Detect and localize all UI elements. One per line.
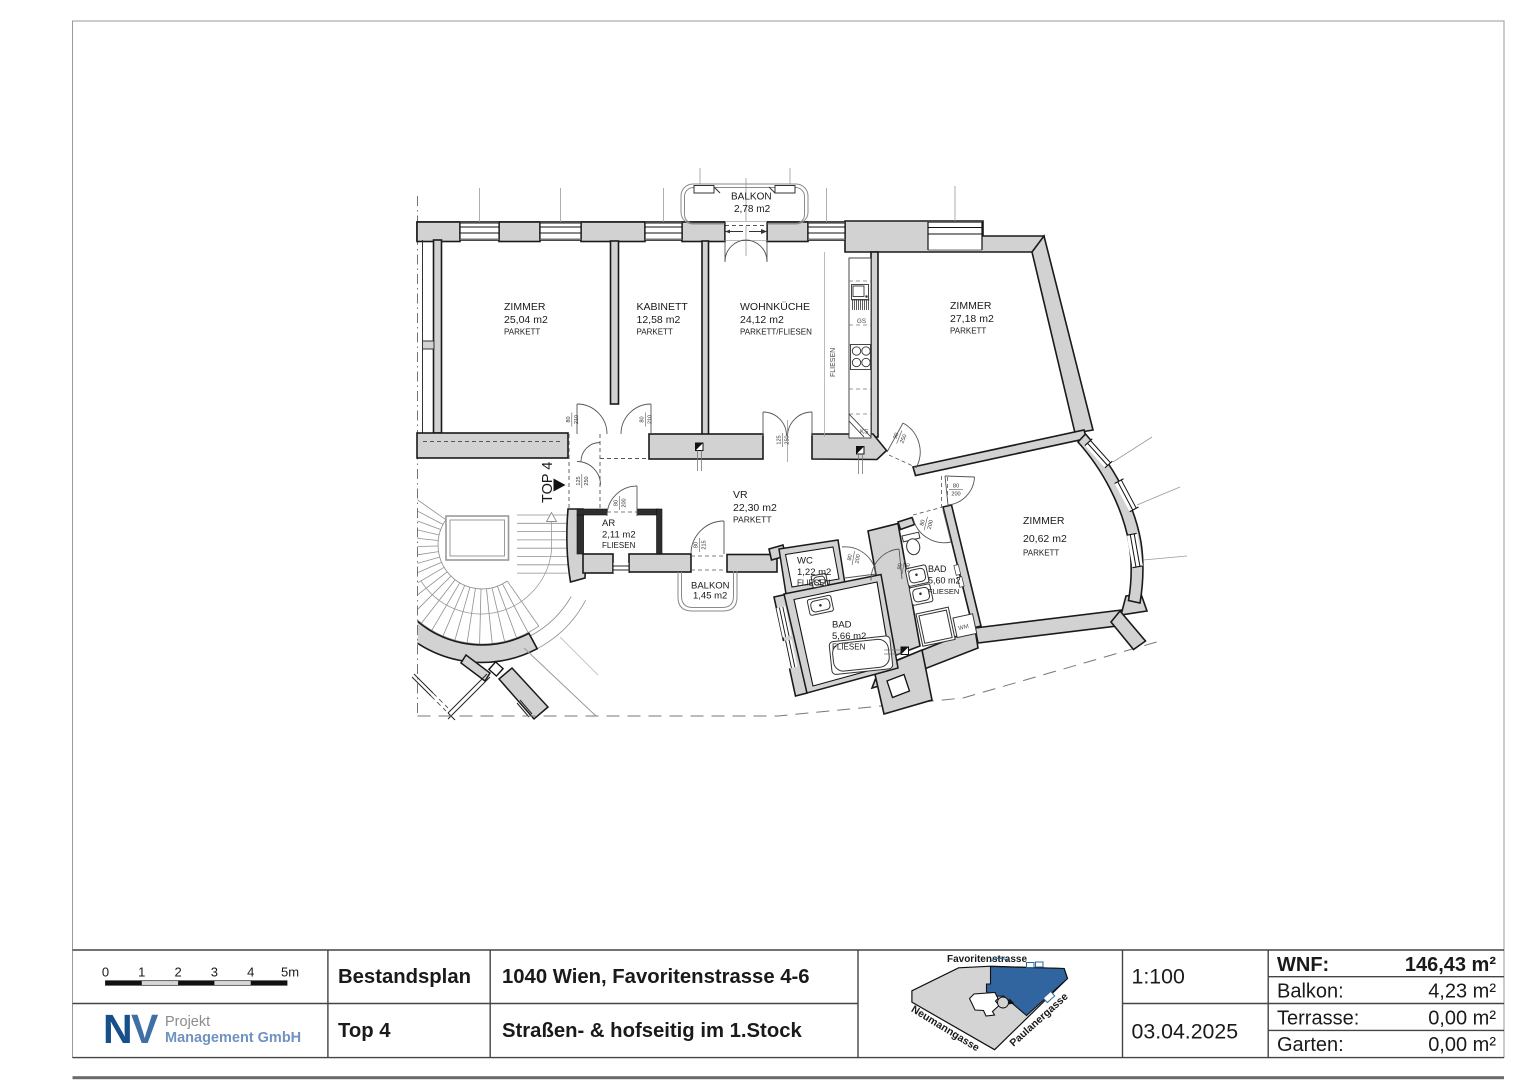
svg-text:ZIMMER: ZIMMER [504, 301, 546, 313]
svg-text:BAD: BAD [928, 564, 947, 574]
svg-text:80: 80 [639, 416, 645, 422]
svg-text:80: 80 [566, 416, 572, 422]
svg-text:0,00 m²: 0,00 m² [1428, 1034, 1496, 1056]
svg-text:200: 200 [951, 491, 960, 497]
svg-text:VR: VR [733, 489, 748, 501]
svg-text:125: 125 [776, 435, 782, 444]
svg-text:22,30 m2: 22,30 m2 [733, 502, 777, 514]
svg-text:BALKON: BALKON [731, 192, 772, 203]
svg-text:2,11 m2: 2,11 m2 [602, 530, 636, 541]
svg-text:BAD: BAD [832, 620, 852, 631]
svg-text:1: 1 [138, 965, 145, 980]
svg-text:25,04 m2: 25,04 m2 [504, 314, 548, 326]
svg-text:4,23 m²: 4,23 m² [1428, 981, 1496, 1003]
svg-text:03.04.2025: 03.04.2025 [1132, 1020, 1239, 1044]
svg-text:Favoritenstrasse: Favoritenstrasse [947, 954, 1027, 965]
svg-text:200: 200 [621, 498, 627, 507]
svg-text:WC: WC [797, 556, 813, 567]
svg-text:FLIESEN: FLIESEN [832, 643, 866, 652]
svg-text:Projekt: Projekt [165, 1014, 210, 1030]
svg-text:PARKETT: PARKETT [1023, 549, 1059, 558]
svg-text:AR: AR [602, 518, 615, 529]
svg-text:215: 215 [701, 540, 707, 549]
svg-text:200: 200 [855, 554, 863, 564]
svg-text:125: 125 [576, 476, 582, 485]
svg-text:WNF:: WNF: [1277, 954, 1329, 976]
svg-text:20,62 m2: 20,62 m2 [1023, 533, 1067, 545]
svg-text:1,22 m2: 1,22 m2 [797, 567, 831, 578]
svg-text:250: 250 [784, 435, 790, 444]
svg-text:1040 Wien, Favoritenstrasse 4-: 1040 Wien, Favoritenstrasse 4-6 [502, 966, 810, 988]
svg-text:FLIESEN: FLIESEN [830, 348, 837, 377]
svg-text:KS: KS [860, 429, 868, 436]
svg-text:FLIESEN: FLIESEN [797, 579, 831, 588]
svg-text:Straßen- & hofseitig im 1.Stoc: Straßen- & hofseitig im 1.Stock [502, 1020, 802, 1042]
svg-text:0,00 m²: 0,00 m² [1428, 1008, 1496, 1030]
svg-text:PARKETT/FLIESEN: PARKETT/FLIESEN [740, 328, 812, 337]
svg-text:210: 210 [574, 415, 580, 424]
svg-text:Management GmbH: Management GmbH [165, 1030, 301, 1046]
svg-text:N: N [103, 1006, 132, 1052]
svg-text:250: 250 [899, 434, 908, 445]
svg-text:2,78 m2: 2,78 m2 [734, 204, 771, 215]
svg-text:Garten:: Garten: [1277, 1034, 1344, 1056]
svg-text:146,43 m²: 146,43 m² [1405, 954, 1497, 976]
svg-text:PARKETT: PARKETT [637, 328, 673, 337]
svg-text:12,58 m2: 12,58 m2 [637, 314, 681, 326]
svg-text:Top 4: Top 4 [338, 1020, 391, 1042]
svg-text:0: 0 [102, 965, 109, 980]
svg-text:Balkon:: Balkon: [1277, 981, 1344, 1003]
svg-text:ZIMMER: ZIMMER [950, 300, 992, 312]
svg-text:PARKETT: PARKETT [504, 328, 540, 337]
svg-text:200: 200 [927, 520, 935, 531]
svg-text:KABINETT: KABINETT [637, 301, 689, 313]
svg-text:5m: 5m [281, 965, 299, 980]
svg-text:27,18 m2: 27,18 m2 [950, 313, 994, 325]
svg-text:WOHNKÜCHE: WOHNKÜCHE [740, 301, 810, 313]
svg-text:90: 90 [893, 432, 901, 440]
svg-text:210: 210 [647, 415, 653, 424]
svg-text:3: 3 [211, 965, 218, 980]
svg-text:4: 4 [247, 965, 254, 980]
svg-text:80: 80 [693, 542, 699, 548]
svg-text:Bestandsplan: Bestandsplan [338, 966, 471, 988]
svg-text:V: V [131, 1006, 159, 1052]
svg-text:Terrasse:: Terrasse: [1277, 1008, 1359, 1030]
svg-text:24,12 m2: 24,12 m2 [740, 314, 784, 326]
svg-text:80: 80 [953, 483, 959, 489]
svg-text:FLIESEN: FLIESEN [928, 587, 959, 596]
svg-text:80: 80 [613, 500, 619, 506]
svg-text:FLIESEN: FLIESEN [602, 541, 636, 550]
svg-text:PARKETT: PARKETT [950, 327, 986, 336]
svg-text:ZIMMER: ZIMMER [1023, 515, 1065, 527]
svg-text:5,60 m2: 5,60 m2 [928, 576, 961, 586]
svg-text:5,66 m2: 5,66 m2 [832, 631, 866, 642]
svg-text:PARKETT: PARKETT [733, 515, 772, 525]
svg-text:250: 250 [584, 476, 590, 485]
svg-text:GS: GS [857, 318, 866, 325]
svg-text:1:100: 1:100 [1132, 965, 1185, 989]
svg-text:1,45 m2: 1,45 m2 [693, 591, 727, 602]
svg-text:2: 2 [174, 965, 181, 980]
